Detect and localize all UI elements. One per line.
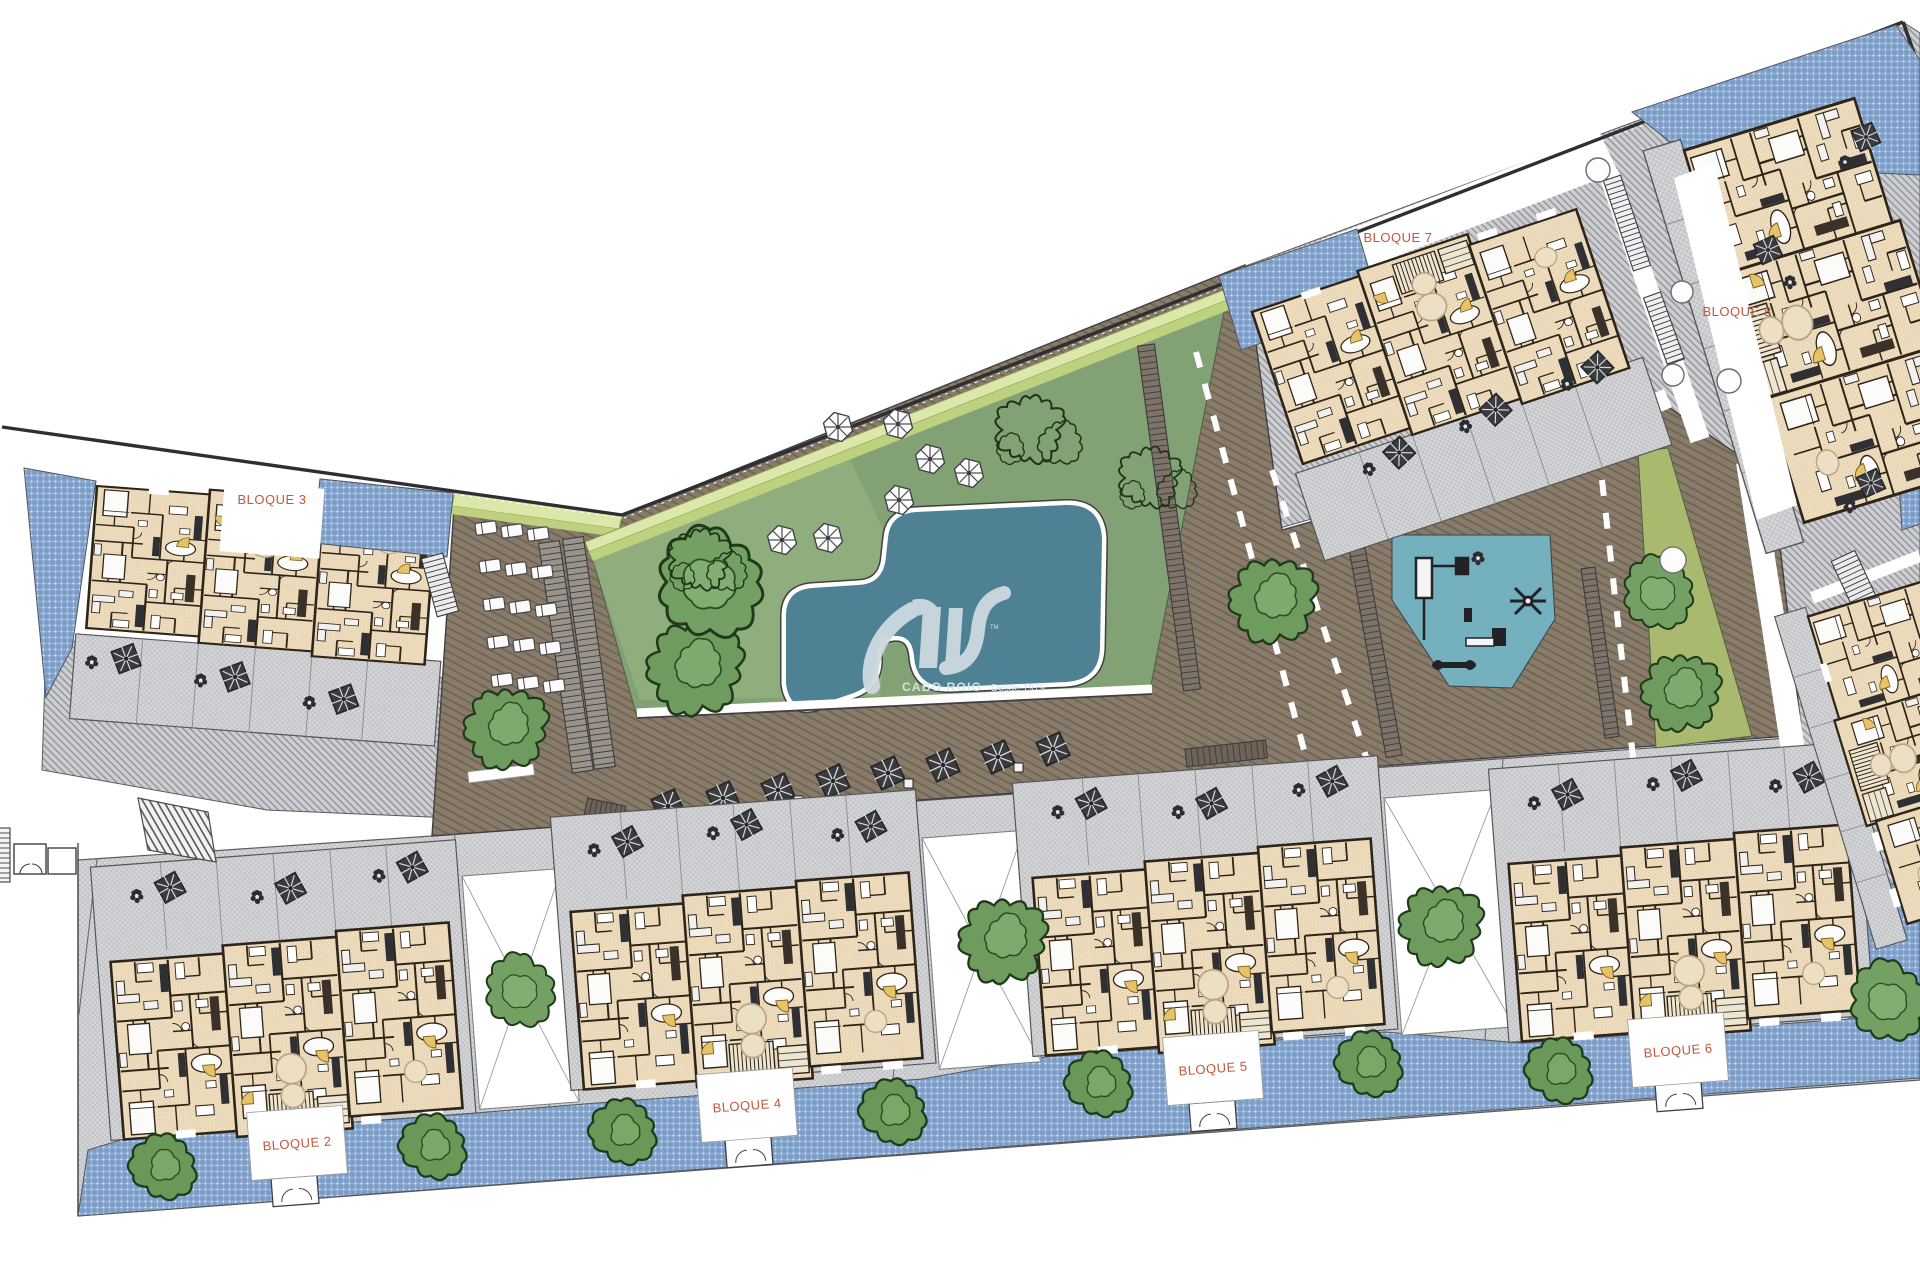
svg-text:BLOQUE 3: BLOQUE 3 — [237, 492, 306, 507]
svg-text:Desde 1979: Desde 1979 — [991, 683, 1045, 694]
svg-text:TM: TM — [990, 625, 999, 631]
svg-text:CABO ROIG: CABO ROIG — [902, 680, 982, 694]
svg-text:BLOQUE 8: BLOQUE 8 — [1702, 304, 1771, 319]
svg-text:BLOQUE 7: BLOQUE 7 — [1363, 230, 1432, 245]
